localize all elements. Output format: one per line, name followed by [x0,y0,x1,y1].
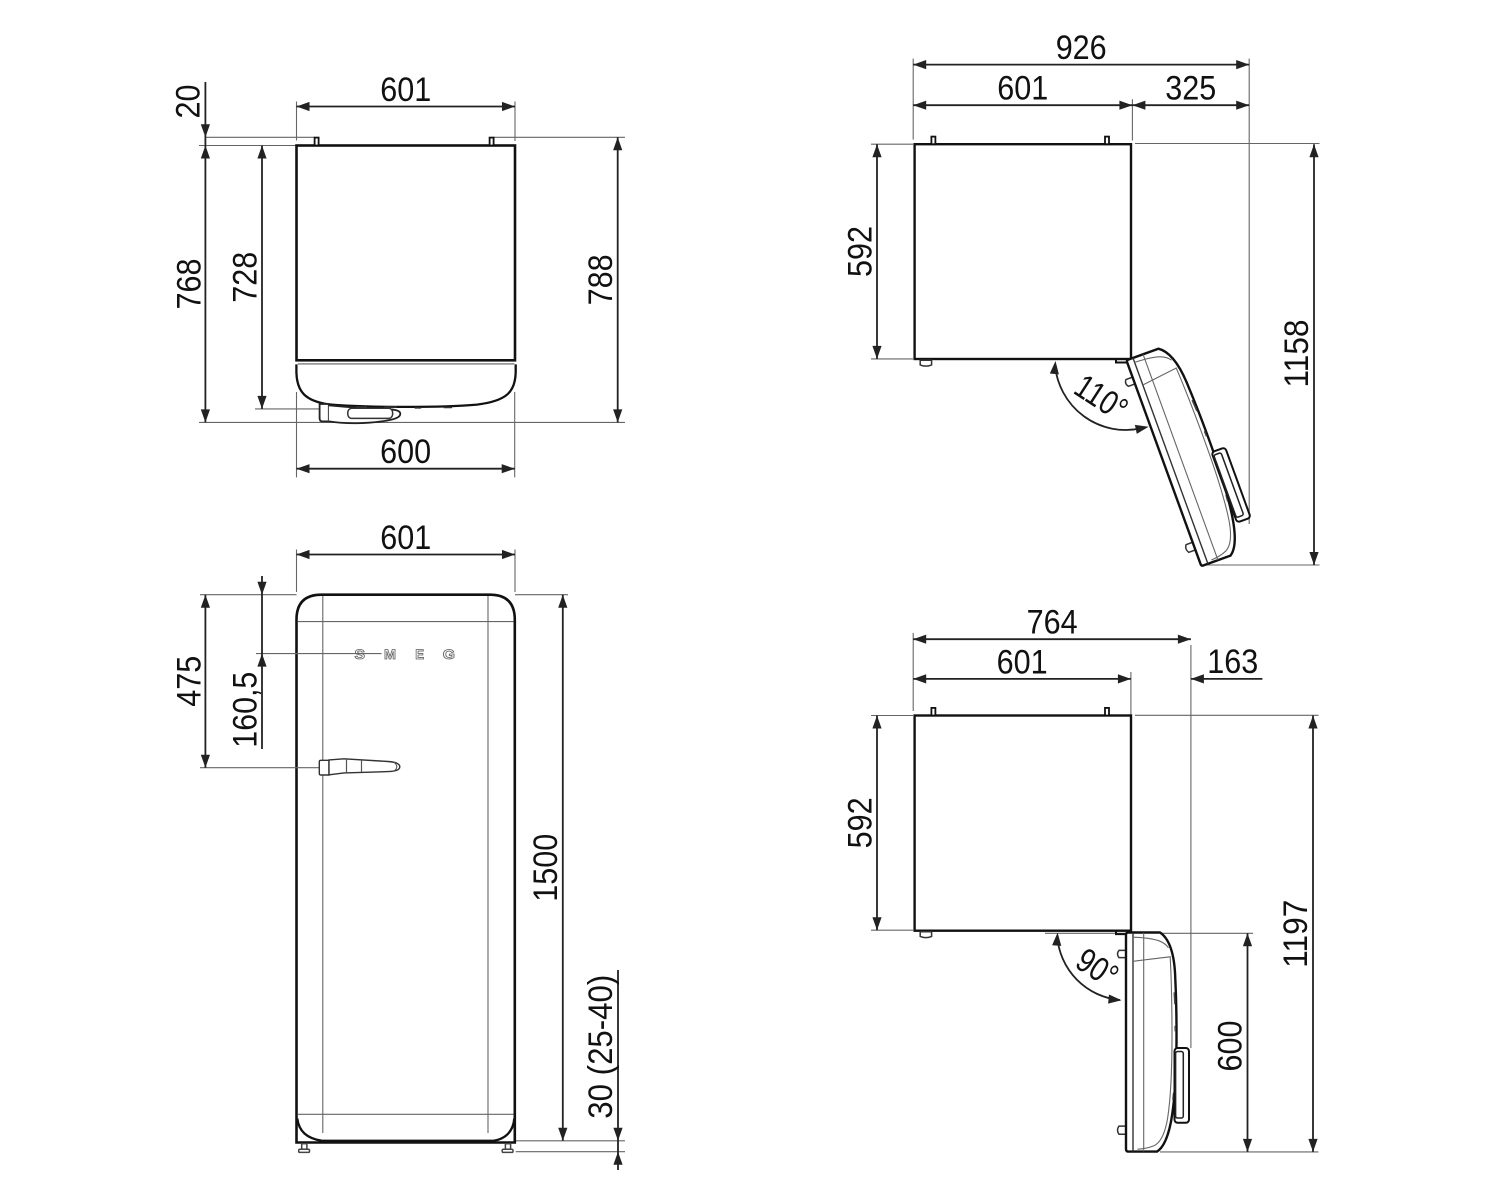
svg-text:592: 592 [841,797,879,848]
svg-text:728: 728 [227,252,265,303]
svg-text:475: 475 [170,656,208,707]
svg-text:325: 325 [1165,70,1216,108]
svg-text:163: 163 [1207,643,1258,681]
svg-text:601: 601 [997,643,1048,681]
svg-text:788: 788 [582,254,620,305]
svg-text:926: 926 [1056,29,1107,67]
svg-text:20: 20 [170,85,208,119]
svg-text:1158: 1158 [1278,320,1316,388]
svg-text:M: M [384,647,396,662]
svg-text:30 (25-40): 30 (25-40) [582,975,620,1119]
svg-text:601: 601 [380,71,431,109]
svg-text:160,5: 160,5 [227,672,265,748]
svg-text:764: 764 [1027,604,1078,642]
svg-text:601: 601 [997,70,1048,108]
svg-text:600: 600 [1212,1021,1250,1072]
svg-text:1500: 1500 [527,834,565,902]
svg-text:601: 601 [380,519,431,557]
svg-text:S: S [355,647,366,662]
svg-text:592: 592 [841,226,879,277]
svg-text:E: E [415,647,424,662]
svg-text:G: G [443,647,455,662]
svg-text:600: 600 [380,433,431,471]
svg-text:1197: 1197 [1277,900,1315,968]
svg-text:768: 768 [170,259,208,310]
